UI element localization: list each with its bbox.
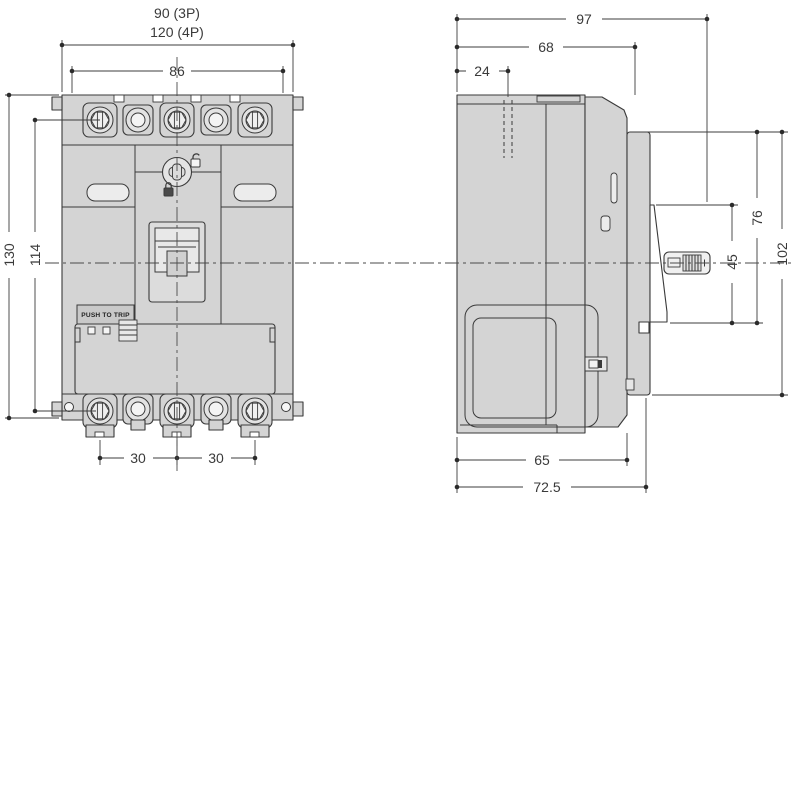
case-notch	[114, 95, 124, 102]
case-notch	[230, 95, 240, 102]
cover-slot	[601, 216, 610, 231]
dim-height-front: 102	[774, 242, 790, 266]
bezel-foot	[639, 322, 649, 333]
dim-pole-pitch-2: 30	[208, 450, 224, 466]
escutcheon-plate	[627, 132, 650, 395]
case-foot	[131, 420, 145, 430]
mounting-hole	[65, 403, 74, 412]
mccb-dimension-drawing: PUSH TO TRIP	[0, 0, 800, 800]
dim-front-width-3p: 90 (3P)	[154, 5, 200, 21]
aux-terminal	[201, 105, 231, 135]
dim-depth-body: 68	[538, 39, 554, 55]
mount-tab	[52, 97, 62, 110]
aux-terminal	[123, 105, 153, 135]
dim-height-cover: 76	[749, 210, 765, 226]
dim-front-width-4p: 120 (4P)	[150, 24, 204, 40]
mount-tab	[293, 97, 303, 110]
drawing-svg: PUSH TO TRIP	[0, 0, 800, 800]
dim-mount-height: 114	[27, 244, 43, 267]
push-to-trip-label: PUSH TO TRIP	[81, 312, 130, 319]
dim-height-escutcheon: 45	[724, 254, 740, 270]
terminal-screw	[238, 394, 272, 428]
indicator-window	[88, 327, 95, 334]
dim-depth-recess: 24	[474, 63, 490, 79]
mount-tab	[52, 402, 62, 416]
dim-pole-pitch-1: 30	[130, 450, 146, 466]
dim-base-depth-total: 72.5	[533, 479, 560, 495]
side-view: 97 68 24 45 76 102 65 72.5	[455, 10, 790, 495]
din-latch	[585, 357, 607, 371]
case-foot	[209, 420, 223, 430]
accessory-slot	[234, 184, 276, 201]
front-view: PUSH TO TRIP	[1, 5, 303, 466]
cover-slot	[611, 173, 617, 203]
dim-height: 130	[1, 243, 17, 267]
cover-clip	[626, 379, 634, 390]
vent-grille	[119, 320, 137, 341]
mounting-hole	[282, 403, 291, 412]
case-notch	[191, 95, 201, 102]
case-foot	[86, 425, 114, 437]
case-notch	[153, 95, 163, 102]
accessory-slot	[87, 184, 129, 201]
terminal-screw	[238, 103, 272, 137]
dim-base-depth: 65	[534, 452, 550, 468]
indicator-window	[103, 327, 110, 334]
mount-tab	[293, 402, 303, 416]
breaker-body-side	[457, 95, 585, 433]
case-foot	[241, 425, 269, 437]
dim-depth-total: 97	[576, 11, 592, 27]
front-cover	[585, 97, 627, 427]
